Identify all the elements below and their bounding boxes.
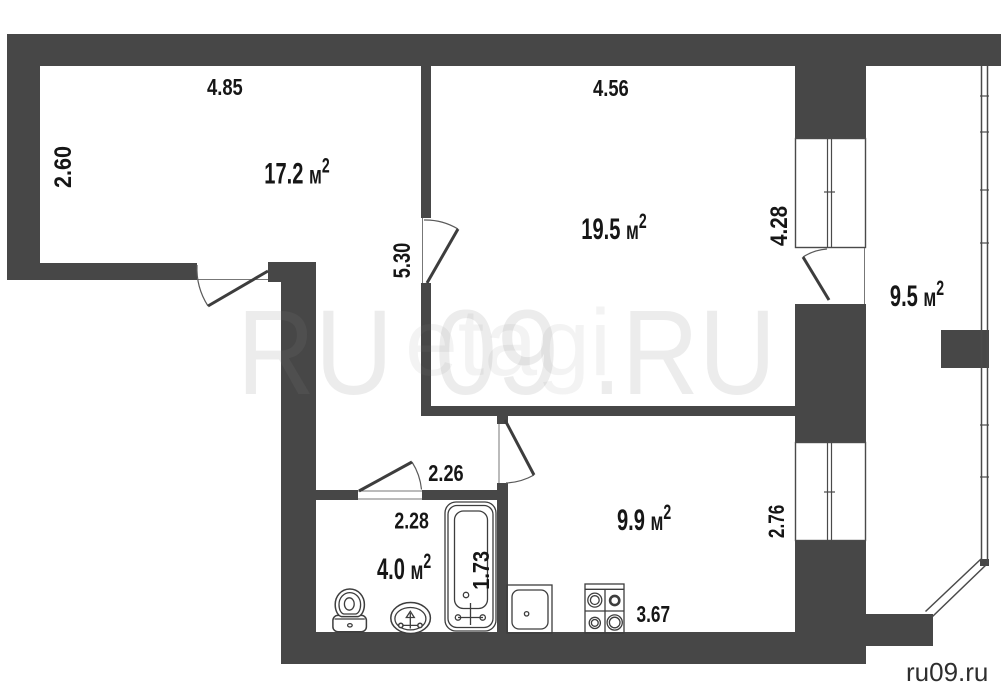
svg-text:3.67: 3.67 bbox=[637, 603, 671, 628]
svg-text:09: 09 bbox=[435, 284, 559, 420]
svg-text:2.28: 2.28 bbox=[394, 509, 428, 535]
svg-text:2.26: 2.26 bbox=[428, 461, 463, 487]
svg-text:9.9 м2: 9.9 м2 bbox=[617, 500, 671, 537]
svg-text:19.5 м2: 19.5 м2 bbox=[581, 209, 646, 246]
svg-text:4.85: 4.85 bbox=[207, 75, 243, 100]
svg-text:4.0 м2: 4.0 м2 bbox=[377, 549, 431, 586]
svg-text:ru09.ru: ru09.ru bbox=[906, 657, 988, 687]
svg-text:RU: RU bbox=[237, 284, 393, 420]
svg-text:4.28: 4.28 bbox=[766, 206, 793, 246]
svg-text:2.76: 2.76 bbox=[765, 505, 790, 538]
svg-text:5.30: 5.30 bbox=[389, 243, 416, 278]
svg-text:1.73: 1.73 bbox=[468, 551, 495, 590]
svg-text:9.5 м2: 9.5 м2 bbox=[890, 276, 944, 313]
svg-text:4.56: 4.56 bbox=[593, 76, 629, 101]
svg-text:2.60: 2.60 bbox=[49, 146, 76, 188]
svg-text:.RU: .RU bbox=[592, 284, 776, 420]
svg-text:17.2 м2: 17.2 м2 bbox=[264, 154, 329, 191]
